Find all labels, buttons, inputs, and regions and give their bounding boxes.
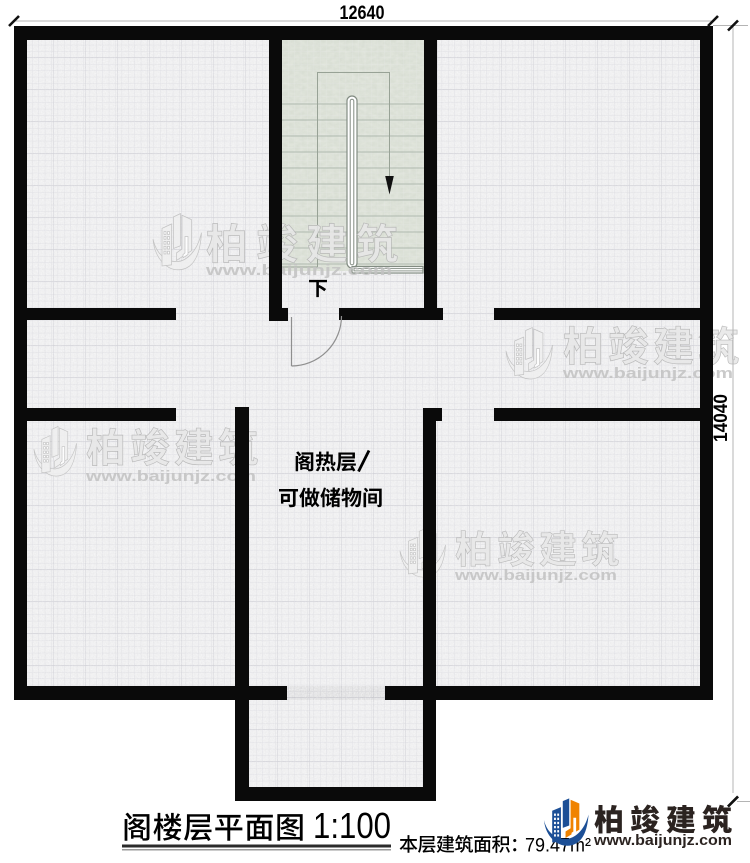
svg-text:14040: 14040 <box>710 394 732 442</box>
svg-text:www.baijunjz.com: www.baijunjz.com <box>205 262 392 279</box>
svg-text:www.baijunjz.com: www.baijunjz.com <box>454 567 617 584</box>
svg-text:www.baijunjz.com: www.baijunjz.com <box>85 468 256 485</box>
svg-text:www.baijunjz.com: www.baijunjz.com <box>593 833 732 849</box>
svg-text:12640: 12640 <box>340 2 385 24</box>
svg-text:1:100: 1:100 <box>313 805 391 846</box>
